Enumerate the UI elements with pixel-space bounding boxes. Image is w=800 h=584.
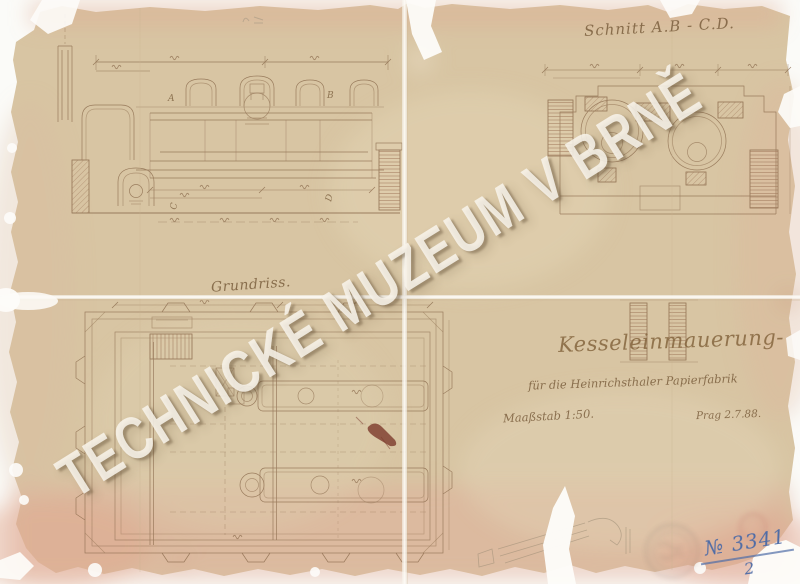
cut-letter-b: B bbox=[326, 91, 334, 101]
place-date-label: Prag 2.7.88. bbox=[696, 408, 762, 422]
cut-letter-a: A bbox=[167, 94, 175, 104]
scanned-drawing-page: A B C D bbox=[0, 0, 800, 584]
